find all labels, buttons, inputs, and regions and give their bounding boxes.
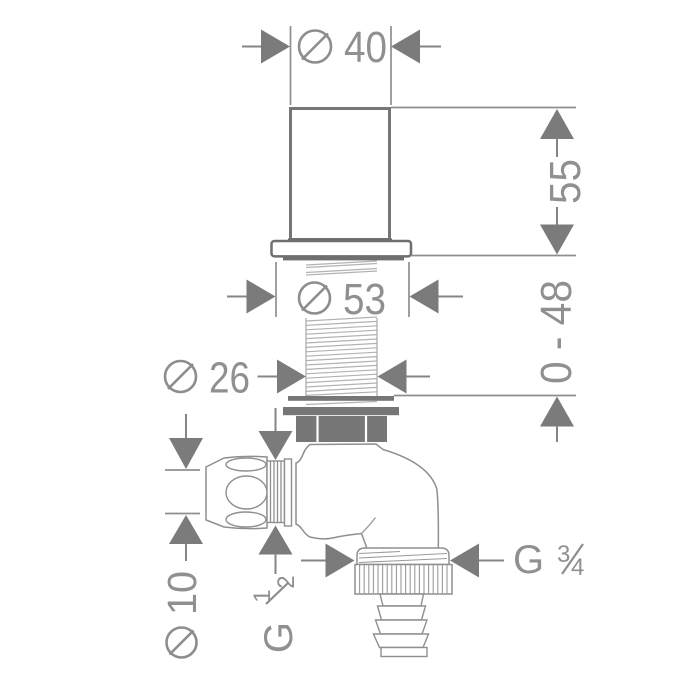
svg-text:2: 2 [273,575,300,588]
svg-text:26: 26 [209,354,250,403]
svg-text:40: 40 [344,23,387,72]
svg-text:G: G [513,538,544,582]
svg-text:10: 10 [159,571,205,615]
svg-text:1: 1 [249,589,276,602]
svg-text:G: G [257,622,301,653]
svg-text:53: 53 [343,275,386,324]
svg-text:0 - 48: 0 - 48 [532,280,581,384]
svg-text:55: 55 [541,159,590,204]
